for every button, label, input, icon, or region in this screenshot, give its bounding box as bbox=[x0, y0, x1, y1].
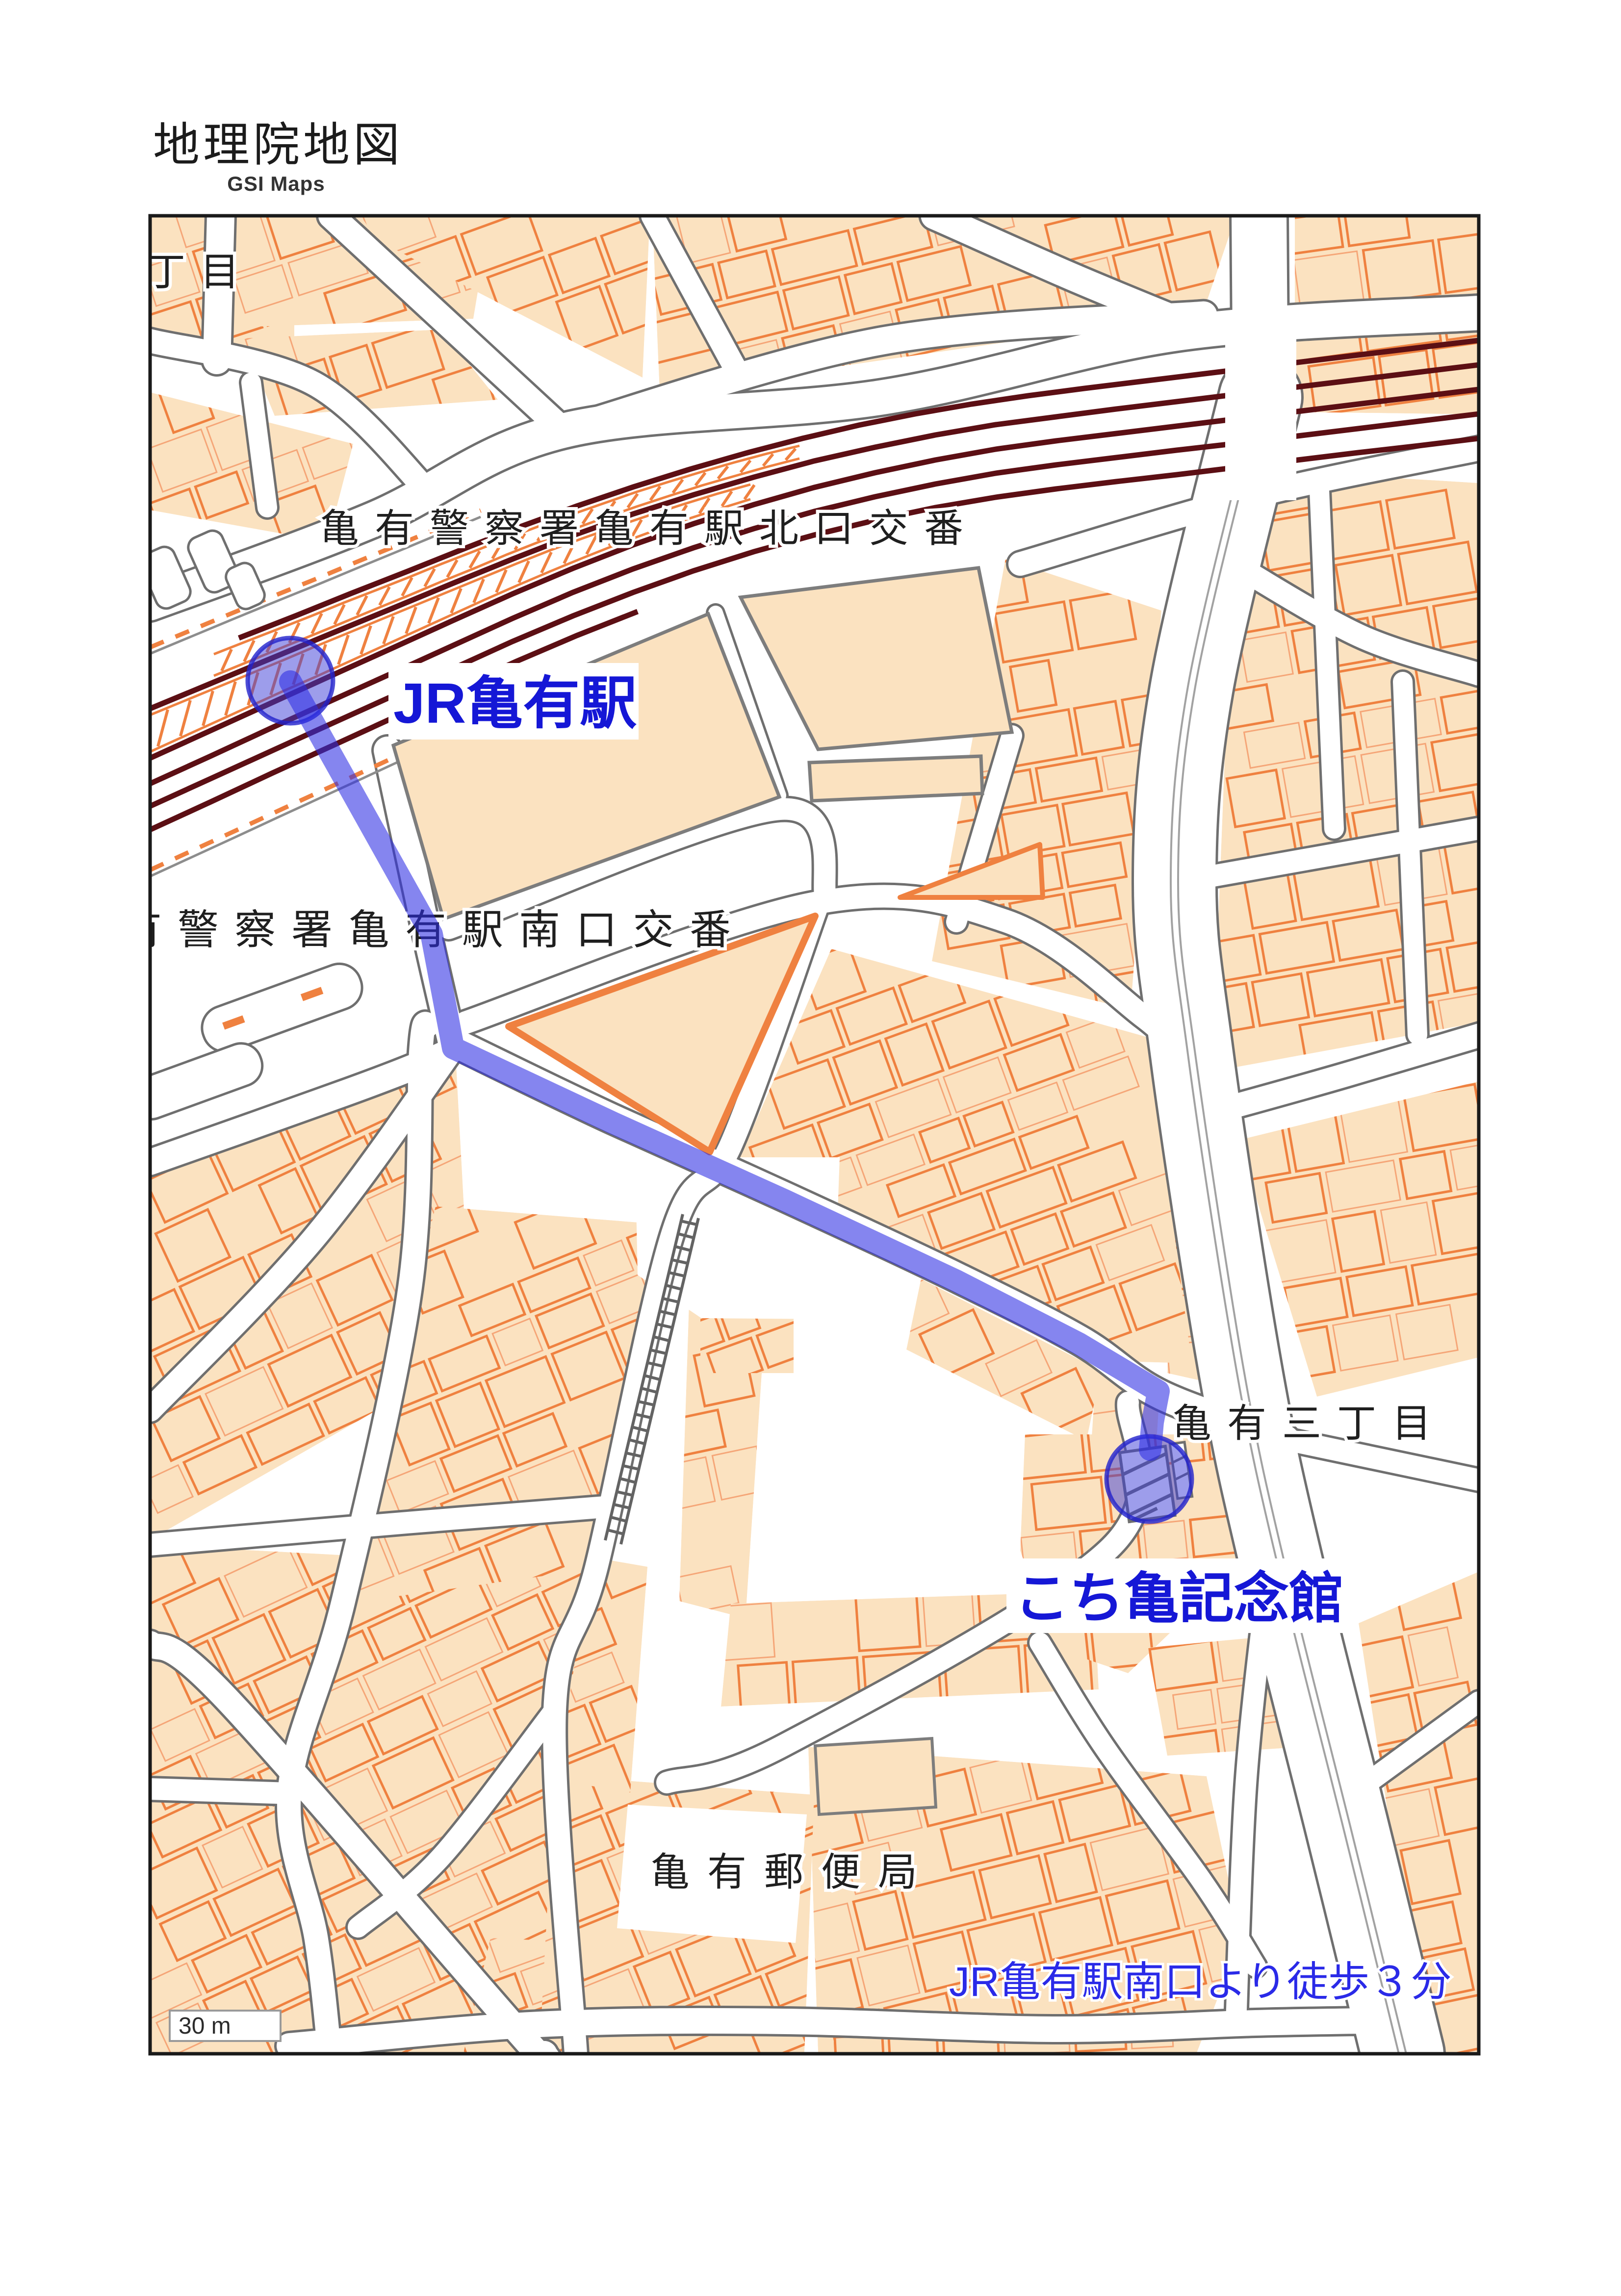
svg-text:亀有郵便局: 亀有郵便局 bbox=[650, 1850, 935, 1894]
svg-text:GSI Maps: GSI Maps bbox=[227, 172, 325, 195]
svg-text:こち亀記念館: こち亀記念館 bbox=[1014, 1568, 1344, 1629]
svg-text:地理院地図: 地理院地図 bbox=[153, 119, 403, 171]
svg-text:丁目: 丁目 bbox=[146, 250, 254, 294]
svg-text:亀有警察署亀有駅北口交番: 亀有警察署亀有駅北口交番 bbox=[320, 507, 979, 550]
svg-text:30 m: 30 m bbox=[179, 2013, 231, 2039]
svg-text:JR亀有駅: JR亀有駅 bbox=[393, 671, 637, 735]
svg-text:JR亀有駅南口より徒歩３分: JR亀有駅南口より徒歩３分 bbox=[949, 1959, 1452, 2005]
svg-text:亀有警察署亀有駅南口交番: 亀有警察署亀有駅南口交番 bbox=[64, 907, 746, 953]
svg-text:亀有三丁目: 亀有三丁目 bbox=[1172, 1402, 1447, 1445]
